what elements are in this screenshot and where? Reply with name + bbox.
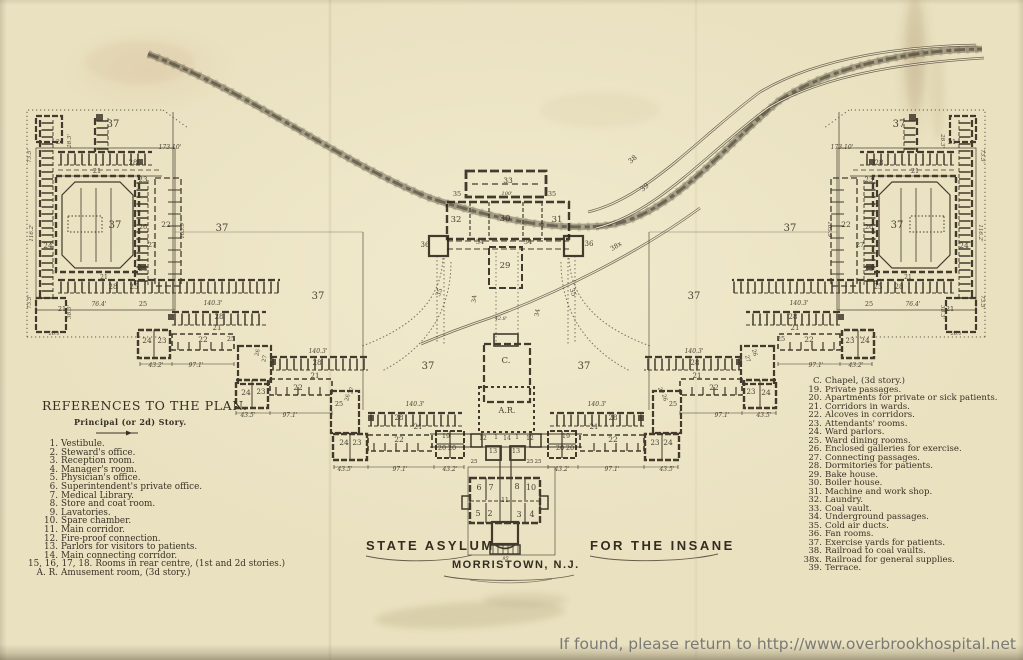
plan-label: 140.3'	[685, 348, 704, 355]
plan-label: 25	[874, 283, 883, 291]
plan-label: 23	[651, 439, 660, 447]
plan-label: 22	[293, 383, 303, 392]
plan-label: 25	[139, 300, 147, 308]
plan-label: 26.1'	[48, 331, 62, 337]
plan-label: 43.2'	[441, 466, 457, 473]
plan-label: 20	[566, 444, 574, 452]
scanned-plan-page: { "colors":{"paper":"#e9e1c0","ink":"#2b…	[0, 0, 1023, 660]
plan-label: 28	[789, 313, 798, 321]
references-subheading: Principal (or 2d) Story.	[74, 417, 187, 427]
plan-label: 43.2'	[553, 466, 569, 473]
plan-label: 36	[585, 240, 594, 248]
title-morristown: MORRISTOWN, N.J.	[452, 559, 572, 571]
plan-label: 23	[865, 176, 874, 184]
plan-label: 43.5'	[239, 412, 255, 419]
plan-label: 43.5'	[755, 412, 771, 419]
plan-label: 11	[501, 497, 509, 504]
plan-label: 43.5'	[658, 466, 674, 473]
plan-label: 26	[139, 223, 147, 231]
plan-label: 23	[747, 388, 756, 396]
plan-label: 25	[130, 283, 139, 291]
plan-label: 105.9'	[826, 221, 832, 238]
plan-label: 140.3'	[309, 348, 328, 355]
plan-label: 12	[526, 435, 534, 442]
plan-label: 21	[414, 423, 423, 431]
plan-label: 34	[471, 295, 479, 303]
plan-label: 26.1'	[950, 331, 964, 337]
plan-label: 97.1'	[808, 362, 823, 369]
plan-label: 34	[476, 238, 484, 246]
plan-label: 25	[335, 400, 343, 408]
plan-label: 21	[693, 372, 702, 380]
plan-label: 21	[56, 138, 64, 146]
plan-label: 29	[500, 261, 511, 271]
reference-item: A. R.Amusement room, (3d story.)	[28, 569, 350, 578]
plan-label: 21	[213, 324, 222, 332]
plan-label: 140.3'	[406, 401, 425, 408]
plan-label: 35	[453, 190, 461, 198]
plan-label: 33	[503, 176, 513, 185]
plan-label: 21	[100, 274, 108, 281]
plan-label: 25	[471, 459, 478, 465]
plan-label: 23	[139, 265, 148, 273]
plan-label: 42.8'	[494, 316, 508, 322]
plan-label: C.	[502, 356, 511, 366]
plan-label: 24	[860, 336, 870, 345]
plan-label: 25	[535, 459, 542, 465]
plan-label: 30	[500, 214, 511, 224]
plan-label: 12	[479, 435, 487, 442]
plan-label: 24	[761, 388, 771, 397]
plan-label: 32	[451, 215, 462, 225]
plan-label: 37	[312, 291, 325, 302]
title-for-the-insane: FOR THE INSANE	[590, 538, 735, 553]
plan-label: 21	[93, 167, 101, 175]
plan-label: 22	[198, 335, 208, 344]
plan-label: 25	[527, 459, 534, 465]
plan-label: 25	[865, 300, 873, 308]
plan-label: 97.1'	[188, 362, 203, 369]
plan-label: 23	[353, 439, 362, 447]
plan-label: 27	[743, 355, 751, 364]
plan-label: 37	[422, 361, 435, 372]
plan-label: 10	[526, 483, 536, 492]
plan-label: 35	[568, 287, 578, 298]
plan-label: 14	[503, 435, 511, 442]
plan-label: 43.2'	[847, 362, 863, 369]
plan-label: 22	[804, 335, 814, 344]
plan-label: 7	[488, 483, 493, 492]
plan-label: 35	[548, 190, 556, 198]
plan-label: 97.1'	[392, 466, 407, 473]
plan-label: 43.2'	[147, 362, 163, 369]
plan-label: 23	[139, 176, 148, 184]
plan-label: 24	[663, 438, 673, 447]
plan-label: 25	[777, 335, 785, 343]
plan-label: 23	[158, 337, 167, 345]
plan-label: 27	[148, 241, 156, 249]
plan-label: 31	[552, 215, 563, 225]
plan-label: 26	[865, 223, 873, 231]
plan-label: 26	[660, 394, 668, 403]
plan-label: 97.1'	[604, 466, 619, 473]
plan-label: 8	[514, 482, 519, 491]
plan-label: 4	[529, 510, 534, 519]
plan-label: 20	[438, 444, 446, 452]
reference-item: 39.Terrace.	[798, 564, 1022, 573]
plan-label: 25	[227, 335, 235, 343]
plan-label: 36	[421, 241, 430, 249]
plan-label: A.R.	[498, 406, 516, 415]
plan-label: 26	[750, 349, 758, 358]
plan-label: 13	[512, 447, 520, 455]
plan-label: 21	[590, 423, 599, 431]
plan-label: 22	[394, 435, 404, 444]
plan-label: 25	[669, 400, 677, 408]
plan-label: 27	[856, 241, 864, 249]
plan-label: 19	[442, 432, 450, 440]
plan-label: 28	[691, 359, 700, 367]
plan-label: 20	[448, 444, 456, 452]
plan-label: 22	[161, 220, 171, 229]
plan-label: 23	[257, 388, 266, 396]
plan-label: 37	[578, 361, 591, 372]
references-list-right: C.Chapel, (3d story.)19.Private passages…	[798, 377, 1022, 573]
plan-label: 28	[129, 159, 138, 167]
plan-label: 116.2'	[977, 224, 983, 241]
plan-label: 37	[784, 223, 797, 234]
title-state-asylum: STATE ASYLUM	[366, 538, 495, 553]
plan-label: 22	[841, 220, 851, 229]
plan-label: 27	[348, 386, 356, 395]
plan-label: 140.3'	[790, 300, 809, 307]
plan-label: 26	[254, 348, 262, 357]
plan-label: 34	[533, 308, 541, 317]
plan-label: 28	[875, 159, 884, 167]
plan-label: 37	[107, 119, 120, 130]
plan-label: 22	[608, 435, 618, 444]
plan-label: 173.10'	[159, 144, 182, 151]
plan-label: 1	[494, 434, 498, 441]
plan-label: 73.5'	[27, 149, 33, 163]
plan-label: 23	[865, 265, 874, 273]
plan-label: 73.5'	[979, 295, 985, 309]
plan-label: 27	[261, 354, 269, 363]
plan-label: 38.3'	[67, 305, 73, 319]
plan-label: 21	[946, 305, 954, 313]
plan-label: 38.3'	[939, 305, 945, 319]
plan-label: 116.2'	[29, 224, 35, 241]
plan-label: 38	[627, 154, 639, 166]
plan-label: 1	[515, 434, 519, 441]
plan-label: 37	[688, 291, 701, 302]
plan-label: 21	[791, 324, 800, 332]
plan-label: 13	[489, 447, 497, 455]
plan-label: 97.1'	[282, 412, 297, 419]
plan-label: 24	[241, 388, 251, 397]
plan-label: 6	[476, 483, 481, 492]
plan-label: 37	[893, 119, 906, 130]
plan-label: 35	[434, 287, 444, 298]
plan-label: 34	[524, 238, 532, 246]
plan-label: 97.1'	[714, 412, 729, 419]
plan-label: 24	[959, 241, 969, 250]
plan-label: 21	[311, 372, 320, 380]
plan-label: 21	[911, 167, 919, 175]
references-heading: REFERENCES TO THE PLAN.	[42, 398, 248, 413]
plan-label: 24	[142, 336, 152, 345]
plan-label: 28.3'	[67, 134, 73, 149]
watermark-text: If found, please return to http://www.ov…	[559, 635, 1016, 653]
plan-label: 21	[948, 138, 956, 146]
plan-label: 73.5'	[27, 295, 33, 309]
plan-label: 73.5'	[979, 149, 985, 163]
plan-label: 28	[395, 414, 404, 422]
plan-label: 76.4'	[91, 301, 106, 308]
plan-label: 28	[895, 283, 904, 291]
plan-label: 76.4'	[905, 301, 920, 308]
plan-label: 2	[487, 509, 492, 518]
references-list-left: 1.Vestibule.2.Steward's office.3.Recepti…	[28, 440, 350, 578]
plan-label: 20	[556, 444, 564, 452]
plan-label: 23	[846, 337, 855, 345]
plan-label: 21	[904, 274, 912, 281]
plan-label: 19	[562, 432, 570, 440]
plan-label: 140.3'	[204, 300, 223, 307]
plan-label: 3	[516, 510, 521, 519]
plan-label: 37	[109, 220, 122, 231]
plan-label: 37	[891, 220, 904, 231]
divider-arrow-icon	[96, 430, 142, 436]
plan-label: 28	[313, 359, 322, 367]
plan-label: 37	[216, 223, 229, 234]
plan-label: 100'	[502, 191, 513, 197]
plan-label: 38x	[609, 240, 624, 253]
plan-label: 24	[43, 241, 53, 250]
plan-label: 28	[609, 414, 618, 422]
plan-label: 22	[709, 383, 719, 392]
plan-label: 28	[109, 283, 118, 291]
plan-label: 105.9'	[180, 221, 186, 238]
plan-label: 140.3'	[588, 401, 607, 408]
plan-label: 28.3'	[939, 133, 945, 148]
plan-label: 173.10'	[831, 144, 854, 151]
plan-label: 5	[475, 509, 480, 518]
plan-label: 21	[58, 305, 66, 313]
plan-label: 28	[215, 313, 224, 321]
